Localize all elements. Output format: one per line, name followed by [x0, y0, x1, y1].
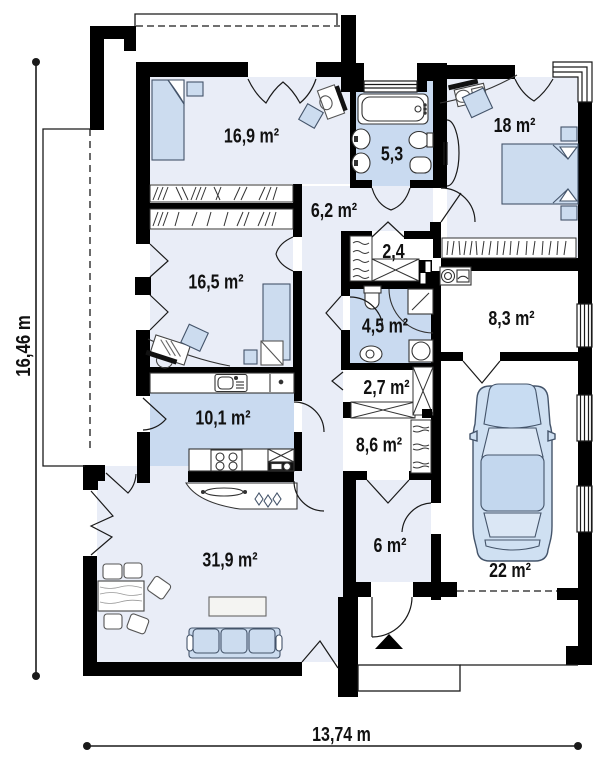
svg-text:31,9 m²: 31,9 m² — [202, 549, 257, 571]
svg-text:6 m²: 6 m² — [374, 534, 407, 556]
svg-text:10,1 m²: 10,1 m² — [195, 407, 250, 429]
svg-text:16,9 m²: 16,9 m² — [224, 125, 279, 147]
svg-text:16,5 m²: 16,5 m² — [188, 271, 243, 293]
svg-text:2,7 m²: 2,7 m² — [363, 376, 409, 398]
svg-text:2,4: 2,4 — [382, 240, 404, 262]
svg-text:18 m²: 18 m² — [494, 114, 536, 136]
svg-text:4,5 m²: 4,5 m² — [362, 315, 408, 337]
svg-text:13,74 m: 13,74 m — [312, 723, 371, 745]
svg-text:8,3 m²: 8,3 m² — [488, 307, 534, 329]
svg-text:6,2 m²: 6,2 m² — [311, 199, 357, 221]
svg-text:5,3: 5,3 — [381, 143, 403, 165]
svg-text:8,6 m²: 8,6 m² — [356, 434, 402, 456]
svg-text:22 m²: 22 m² — [489, 559, 531, 581]
svg-text:16,46 m: 16,46 m — [12, 315, 35, 377]
